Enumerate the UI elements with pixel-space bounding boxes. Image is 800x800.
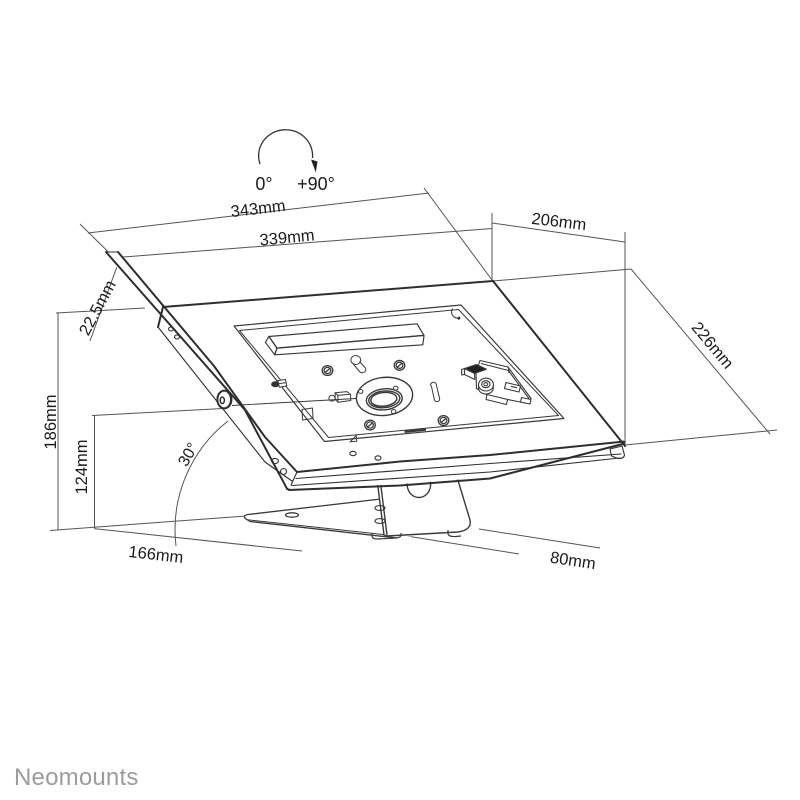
svg-text:80mm: 80mm bbox=[549, 549, 597, 574]
svg-text:206mm: 206mm bbox=[530, 210, 587, 234]
svg-text:343mm: 343mm bbox=[230, 197, 287, 221]
svg-text:Neomounts: Neomounts bbox=[14, 764, 139, 791]
svg-text:+90°: +90° bbox=[297, 174, 335, 194]
svg-text:30°: 30° bbox=[175, 440, 202, 469]
svg-text:186mm: 186mm bbox=[42, 394, 60, 449]
svg-text:339mm: 339mm bbox=[259, 226, 315, 249]
svg-text:0°: 0° bbox=[255, 174, 272, 194]
svg-text:166mm: 166mm bbox=[128, 543, 185, 567]
svg-text:124mm: 124mm bbox=[73, 439, 91, 494]
svg-text:22.5mm: 22.5mm bbox=[76, 277, 120, 338]
